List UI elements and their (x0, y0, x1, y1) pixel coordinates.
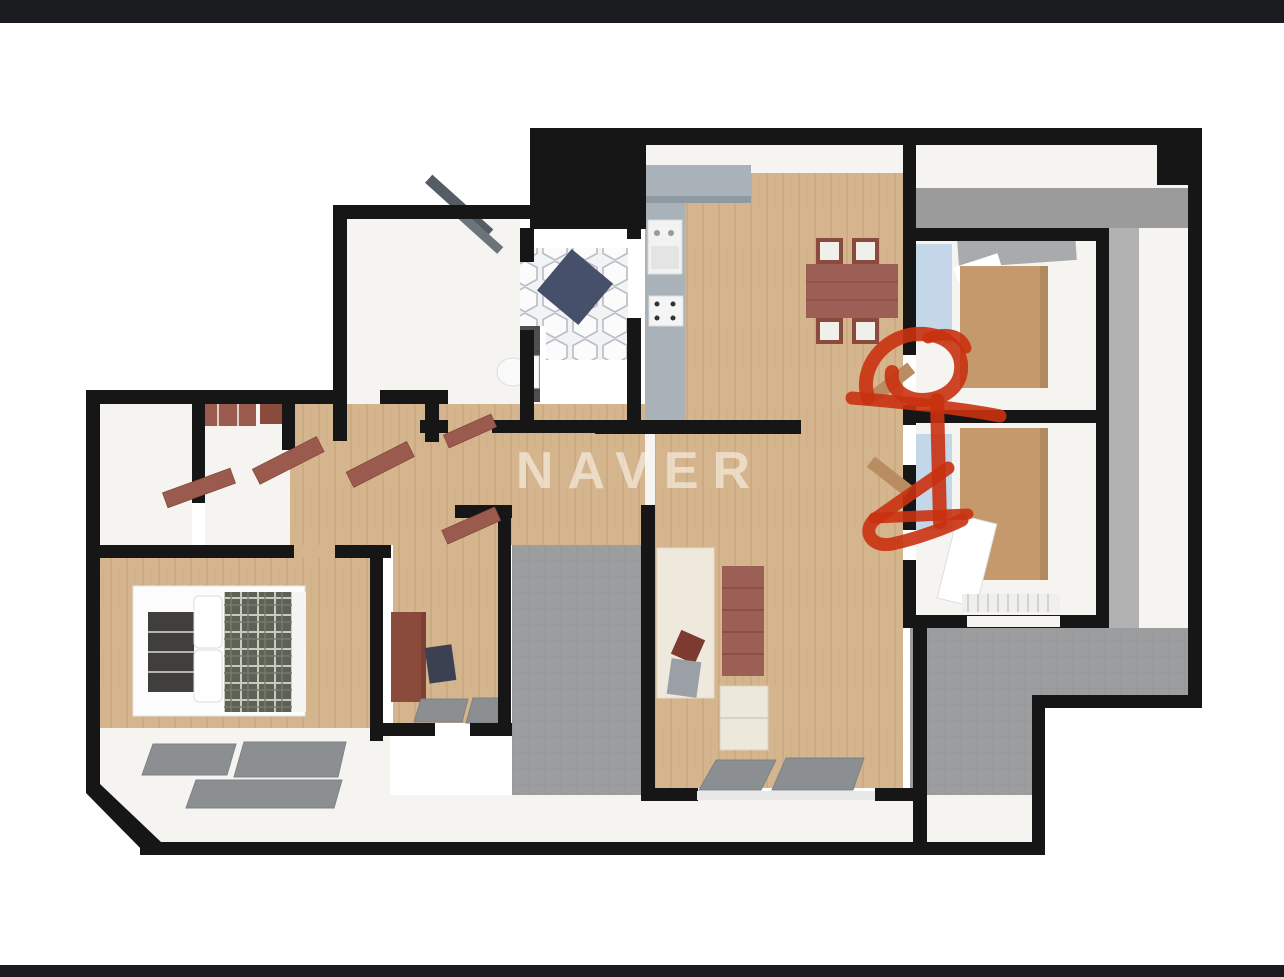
dining-table (806, 264, 898, 318)
balcony-gray-bottom-right (910, 628, 1190, 695)
pillow (194, 650, 222, 702)
bench-right-lower (962, 594, 1060, 612)
burner-panel (649, 296, 683, 326)
entry-hex-floor-2 (546, 326, 628, 360)
desk (391, 612, 426, 702)
hallway-door-gap-floor (294, 545, 335, 558)
wardrobe-right-lower-edge (1040, 428, 1048, 580)
wardrobe-right-upper-edge (1040, 266, 1048, 388)
letterbox-bottom-bar (0, 965, 1284, 977)
burner-dot (655, 316, 660, 321)
bedroom-balcony-mat (142, 744, 236, 775)
living-balcony-mat (772, 758, 864, 790)
burner-dot (655, 302, 660, 307)
threshold-right-lower (967, 616, 1060, 627)
burner-dot (671, 316, 676, 321)
top-right-wall-face (910, 188, 1190, 228)
closet-left-floor (100, 404, 192, 545)
floorplan-image: NAVER (0, 0, 1284, 977)
study-balcony-mat (414, 699, 468, 722)
burner-dot (671, 302, 676, 307)
stove-knob (668, 230, 674, 236)
stove-grate (651, 246, 679, 269)
bedroom-balcony-mat (234, 742, 346, 777)
threshold-living-balcony (697, 791, 875, 800)
sofa (722, 566, 764, 676)
rug-throw-blanket (667, 658, 702, 698)
blanket-fold (292, 592, 306, 712)
naver-watermark: NAVER (516, 441, 764, 501)
desk-chair (425, 644, 457, 683)
desk-edge (421, 612, 426, 702)
kitchen-counter-top-edge (645, 196, 751, 203)
plaid-blanket (224, 592, 294, 712)
bedroom-balcony-mat (186, 780, 342, 808)
pillow (194, 596, 222, 648)
wardrobe-right-upper (960, 266, 1048, 388)
stove-knob (654, 230, 660, 236)
